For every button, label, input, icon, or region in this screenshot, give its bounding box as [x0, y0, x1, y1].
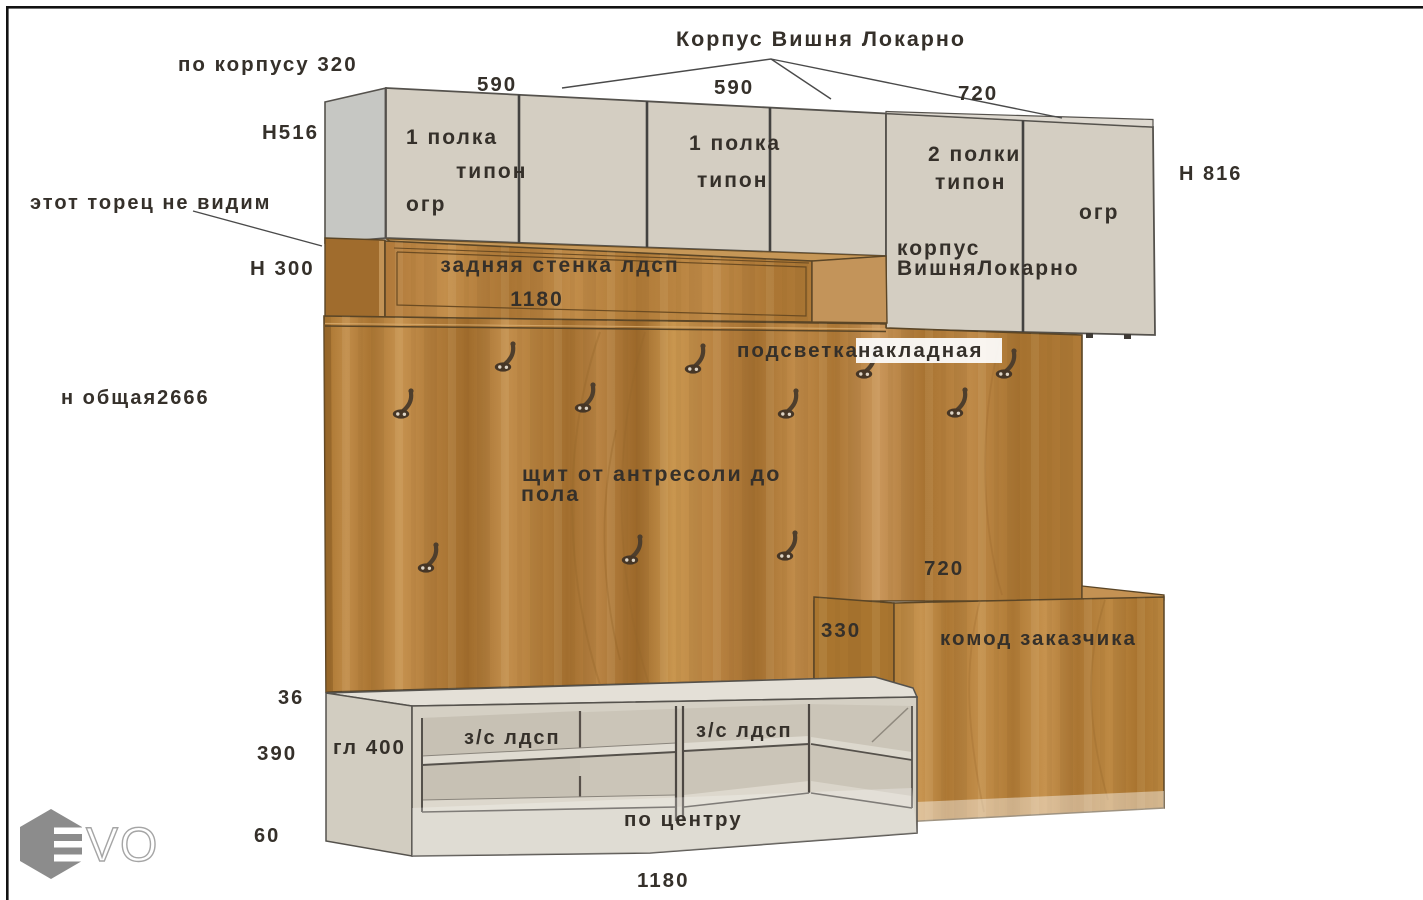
- svg-text:1 полка: 1 полка: [689, 132, 781, 155]
- svg-text:комод заказчика: комод заказчика: [940, 627, 1137, 650]
- svg-text:1 полка: 1 полка: [406, 126, 498, 149]
- svg-text:н общая2666: н общая2666: [61, 387, 210, 409]
- svg-text:огр: огр: [1079, 201, 1119, 224]
- svg-text:гл 400: гл 400: [333, 736, 406, 759]
- svg-text:36: 36: [278, 687, 304, 709]
- svg-text:накладная: накладная: [858, 339, 983, 362]
- svg-text:ВишняЛокарно: ВишняЛокарно: [897, 257, 1080, 280]
- svg-text:пола: пола: [521, 482, 580, 506]
- svg-text:этот торец не видим: этот торец не видим: [30, 192, 271, 214]
- svg-text:Н 816: Н 816: [1179, 163, 1242, 185]
- svg-text:720: 720: [958, 82, 998, 105]
- svg-text:Н 300: Н 300: [250, 257, 315, 280]
- svg-text:1180: 1180: [637, 869, 689, 892]
- svg-text:330: 330: [821, 619, 861, 642]
- svg-text:590: 590: [477, 73, 517, 96]
- svg-text:1180: 1180: [510, 288, 564, 311]
- svg-text:720: 720: [924, 557, 964, 580]
- svg-text:Корпус Вишня Локарно: Корпус Вишня Локарно: [676, 27, 966, 51]
- svg-text:2 полки: 2 полки: [928, 143, 1021, 166]
- svg-text:огр: огр: [406, 193, 446, 216]
- svg-text:з/с лдсп: з/с лдсп: [464, 727, 561, 749]
- svg-text:Н516: Н516: [262, 121, 319, 144]
- svg-text:590: 590: [714, 76, 754, 99]
- svg-text:задняя стенка лдсп: задняя стенка лдсп: [440, 254, 679, 277]
- svg-text:по центру: по центру: [624, 808, 743, 831]
- svg-text:60: 60: [254, 825, 280, 847]
- svg-text:типон: типон: [697, 169, 768, 192]
- svg-text:по корпусу 320: по корпусу 320: [178, 53, 358, 76]
- svg-text:390: 390: [257, 742, 297, 765]
- svg-text:VO: VO: [86, 819, 159, 872]
- svg-text:типон: типон: [935, 171, 1006, 194]
- svg-text:з/с лдсп: з/с лдсп: [696, 720, 793, 742]
- svg-text:подсветка: подсветка: [737, 339, 859, 362]
- svg-text:типон: типон: [456, 160, 527, 183]
